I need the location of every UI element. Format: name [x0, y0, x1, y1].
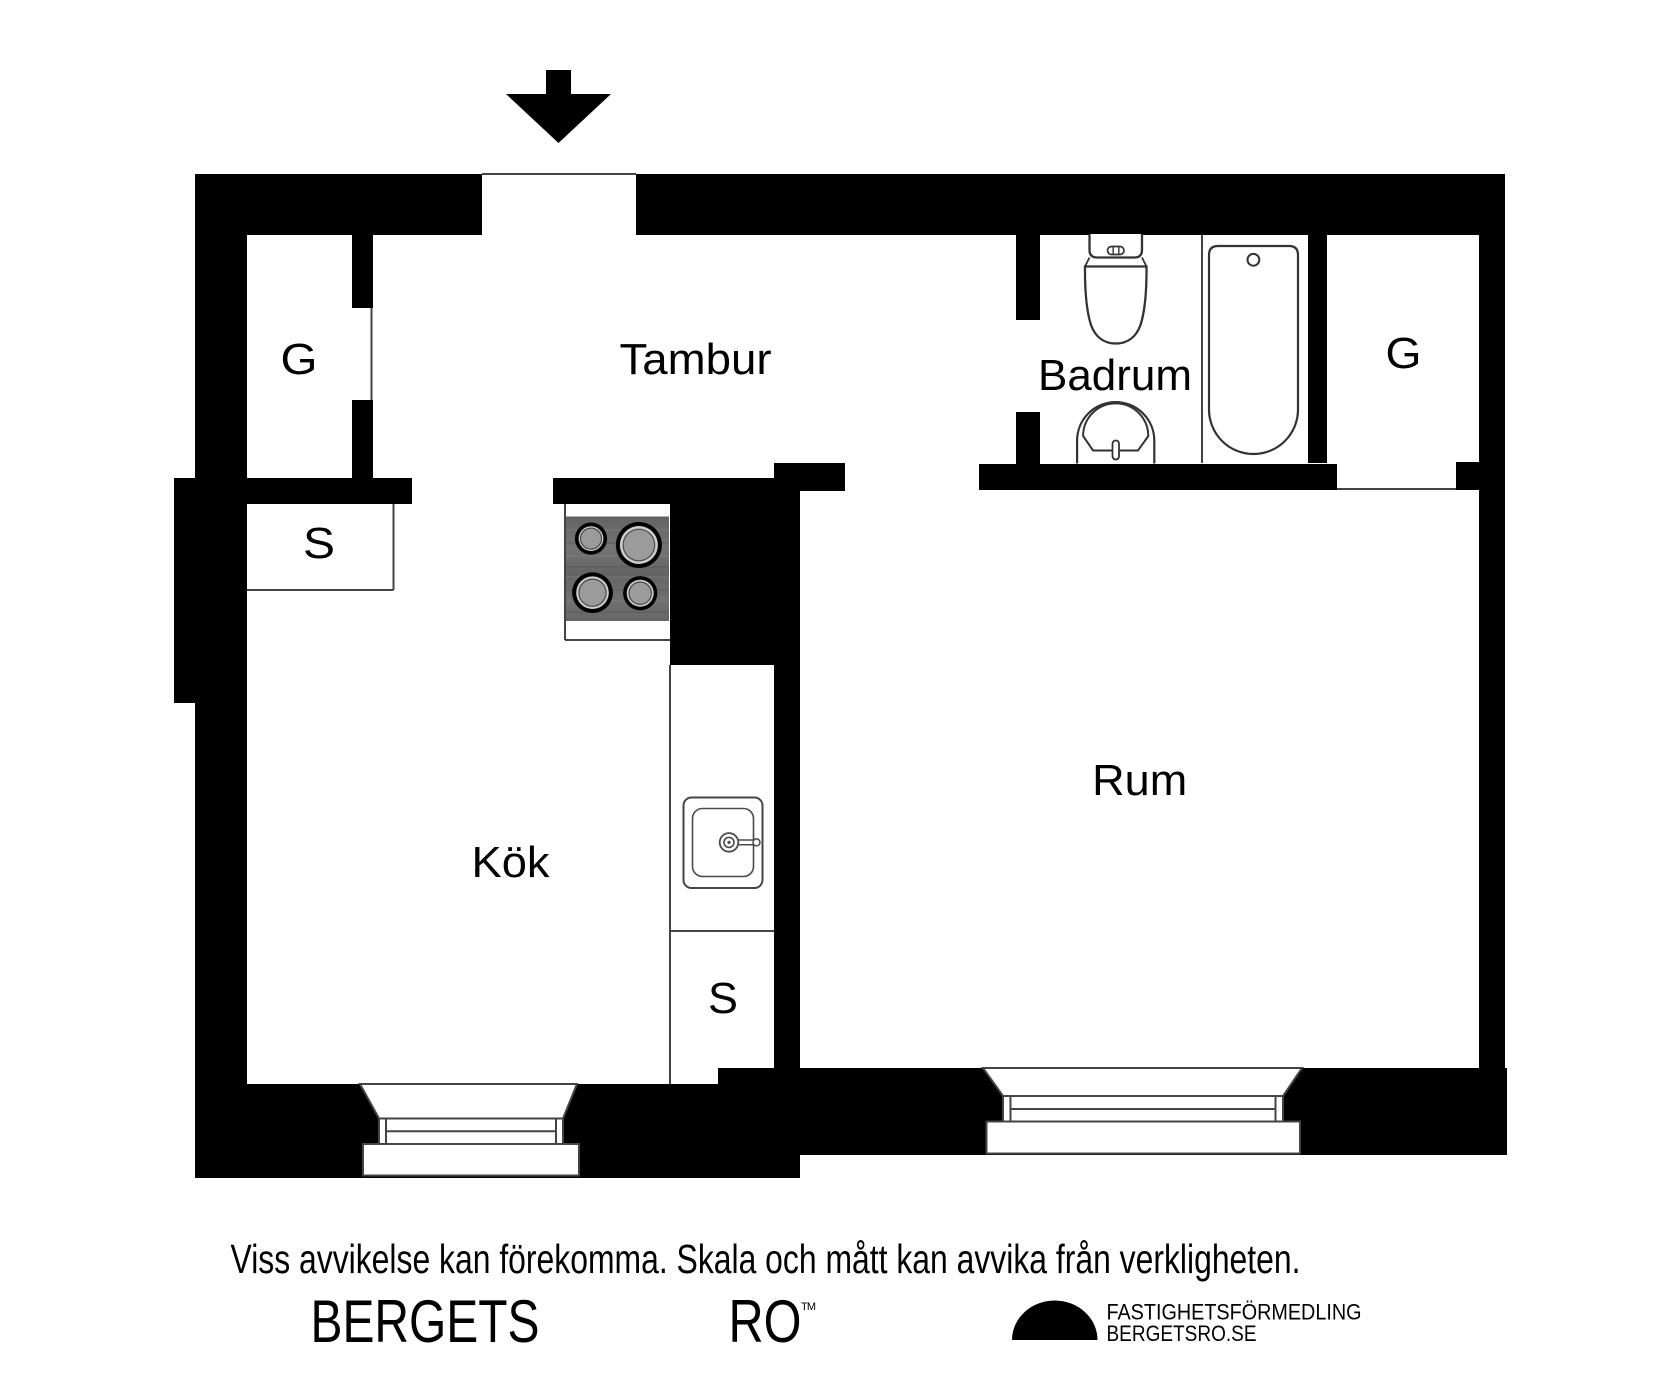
svg-text:S: S: [708, 974, 738, 1023]
svg-text:G: G: [1386, 329, 1422, 378]
svg-text:G: G: [281, 335, 318, 384]
svg-text:Tambur: Tambur: [620, 335, 772, 384]
svg-text:Rum: Rum: [1092, 756, 1187, 805]
svg-text:TM: TM: [801, 1301, 816, 1313]
svg-text:Badrum: Badrum: [1038, 351, 1192, 400]
svg-text:BERGETSRO.SE: BERGETSRO.SE: [1107, 1321, 1257, 1346]
svg-text:BERGETS: BERGETS: [311, 1288, 540, 1355]
svg-text:S: S: [303, 519, 335, 568]
svg-text:Kök: Kök: [472, 838, 551, 887]
svg-text:Viss avvikelse kan förekomma.: Viss avvikelse kan förekomma. Skala och …: [231, 1236, 1301, 1282]
svg-text:RO: RO: [729, 1288, 802, 1355]
